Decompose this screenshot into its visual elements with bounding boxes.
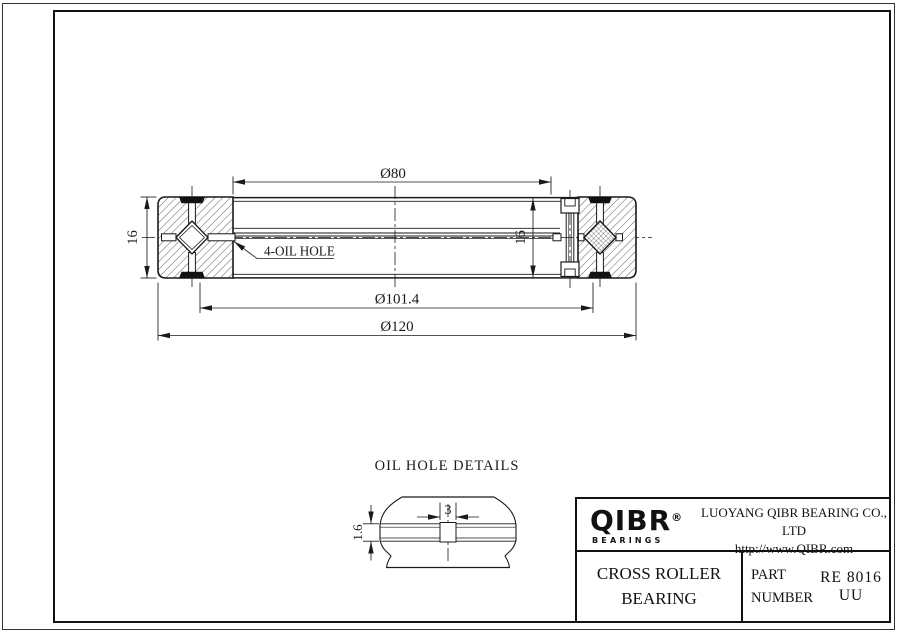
oil-hole-bore [440,523,456,543]
product-name: CROSS ROLLER BEARING [577,552,743,621]
dim-height-inner-label: 16 [513,230,529,245]
plug-section [553,199,579,277]
qibr-logo: QIBR® BEARINGS [577,499,699,550]
title-block-header: QIBR® BEARINGS LUOYANG QIBR BEARING CO.,… [577,499,889,552]
oil-hole-label: 4-OIL HOLE [264,244,335,259]
dim-oil-groove-depth [363,505,379,561]
part-cell: PART NUMBER RE 8016 UU [743,552,889,621]
part-number-value: RE 8016 UU [813,569,889,605]
dim-height-left-label: 16 [125,230,141,245]
drawing-sheet: Ø80 Ø101.4 Ø120 16 16 4-OIL HOLE OIL HOL… [0,0,900,636]
registered-mark-icon: ® [671,511,682,524]
oil-hole-detail-view [363,497,516,568]
dim-oil-hole-width-label: 3 [445,503,452,518]
company-info: LUOYANG QIBR BEARING CO., LTD http://www… [699,499,889,550]
title-block: QIBR® BEARINGS LUOYANG QIBR BEARING CO.,… [575,497,891,623]
product-name-line2: BEARING [577,586,741,611]
company-name: LUOYANG QIBR BEARING CO., LTD [699,504,889,540]
part-number-label: PART NUMBER [743,564,813,610]
oil-hole-channel [208,234,235,241]
title-block-body: CROSS ROLLER BEARING PART NUMBER RE 8016… [577,552,889,621]
dim-bore-label: Ø80 [380,166,406,182]
oil-hole-detail-title: OIL HOLE DETAILS [375,458,520,474]
logo-text: QIBR [590,504,671,537]
product-name-line1: CROSS ROLLER [577,561,741,586]
dim-outer-label: Ø120 [380,319,413,335]
dim-oil-groove-depth-label: 1.6 [350,524,365,541]
logo-subtitle: BEARINGS [592,536,699,545]
dim-seal-label: Ø101.4 [375,292,420,308]
raceway-band [233,228,560,238]
